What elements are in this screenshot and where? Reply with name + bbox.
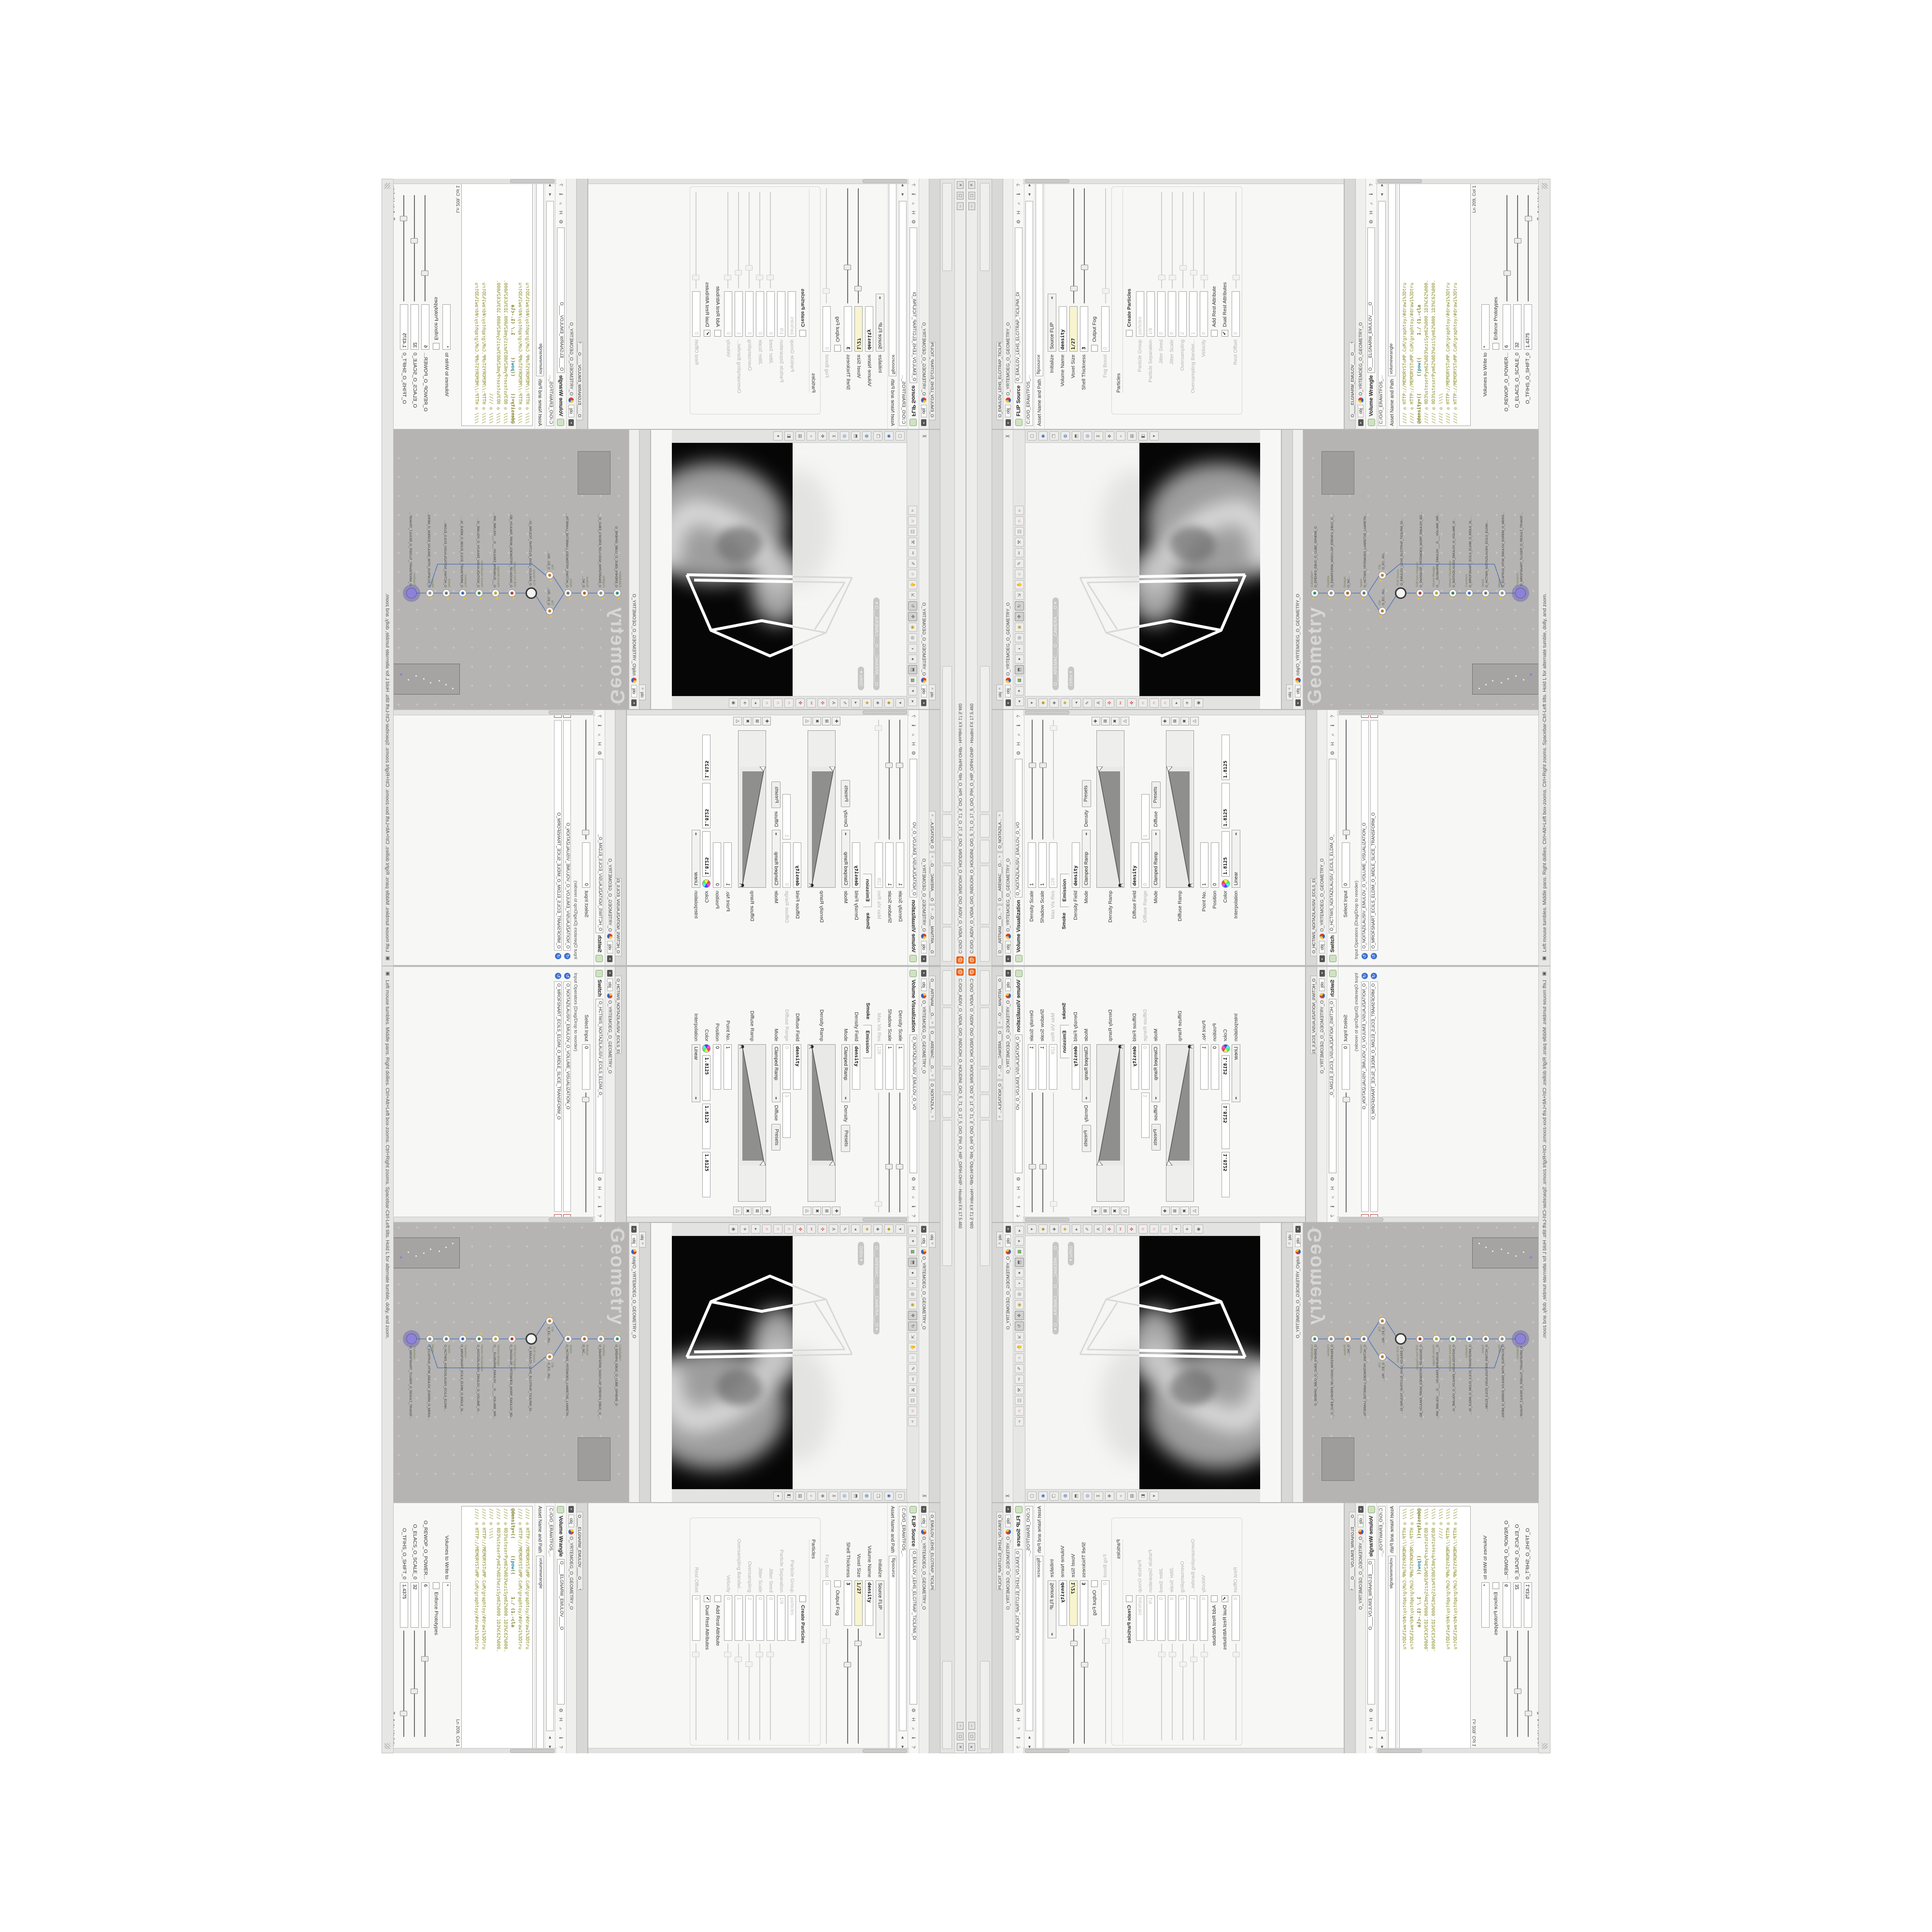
value-field-oversampling-bandwi-[interactable]: 1 xyxy=(735,291,743,337)
move-tool-icon[interactable]: ✥ xyxy=(909,612,918,621)
snapshot-icon[interactable]: ▤ xyxy=(796,1492,805,1501)
network-canvas[interactable]: + + + + + + + + + + + + + + + + + + + + … xyxy=(1303,1223,1539,1502)
value-field-oversampling[interactable]: 2 xyxy=(746,291,754,337)
magnifier-icon[interactable]: ⌕ xyxy=(911,1194,916,1201)
value-field-rest-offset[interactable]: 0 xyxy=(1232,1595,1240,1641)
ramp-button[interactable]: ⊞ xyxy=(822,1207,831,1215)
folder-tab-smoke[interactable]: Smoke xyxy=(863,908,872,934)
network-pane-tab[interactable]: obj✕ xyxy=(1286,1232,1293,1248)
network-node-vdb-from-polygons[interactable] xyxy=(508,1335,516,1343)
pane-scrollbar[interactable] xyxy=(588,179,909,184)
houdini-help-icon[interactable]: H xyxy=(911,1716,916,1723)
slider-track[interactable] xyxy=(1168,1644,1176,1743)
node-name-field[interactable]: O_NOITAZILAUSIV_EMULOV_O_VO xyxy=(1015,1035,1023,1173)
folder-tab-smoke[interactable]: Smoke xyxy=(863,998,872,1024)
fly-icon[interactable]: ✈ xyxy=(1183,698,1192,708)
cut-icon[interactable]: ✂ xyxy=(909,1375,918,1384)
network-node-clip[interactable] xyxy=(1378,1317,1386,1325)
ramp-editor[interactable] xyxy=(1166,730,1194,888)
move-tool-icon[interactable]: ✥ xyxy=(1015,1311,1024,1320)
snap-grid-icon[interactable]: ◫ xyxy=(1015,527,1024,536)
context-tab[interactable]: obj xyxy=(921,979,927,991)
info-icon[interactable]: ℹ xyxy=(1369,1734,1374,1741)
network-node-boolean[interactable] xyxy=(1344,1335,1351,1343)
shading-icon[interactable]: ◆ xyxy=(1038,1224,1048,1234)
value-field-voxel-size[interactable]: 1/27 xyxy=(1069,306,1078,352)
magnet-2-icon[interactable]: ∩ xyxy=(1150,698,1159,708)
dropdown-interpolation[interactable]: Linear◂▸ xyxy=(692,1044,700,1102)
geometry-select-icon[interactable]: ▦ xyxy=(909,1247,918,1256)
presets-button[interactable]: Presets xyxy=(1151,781,1161,809)
network-node-flip-source[interactable] xyxy=(526,1333,537,1345)
network-canvas[interactable]: + + + + + + + + + + + + + + + + + + + + … xyxy=(393,430,629,709)
value-field-velocity[interactable]: 0 xyxy=(724,291,733,337)
annotate-icon[interactable]: ✎ xyxy=(1083,698,1092,708)
node-name-field[interactable]: O_HCTIWS_NOITAZILAUSIV_ECILS_ELDIM_O_ xyxy=(596,999,603,1173)
scene-context-path[interactable]: O_YRTEMOEG_O_GEOMETRY_O xyxy=(922,1256,927,1330)
node-name-field[interactable]: O_EMULOV_LEHS_ELCITRAP_TICILPMI_DI xyxy=(1015,227,1023,383)
ramp-button[interactable]: ✖ xyxy=(812,717,821,725)
resize-grip[interactable] xyxy=(385,1743,391,1749)
shelf-tools[interactable] xyxy=(942,666,952,812)
help-icon[interactable]: ? xyxy=(911,713,916,720)
houdini-help-icon[interactable]: H xyxy=(1369,1716,1374,1723)
network-minimap[interactable] xyxy=(1472,664,1539,695)
checkbox-create-particles[interactable] xyxy=(799,1595,806,1602)
expand-icon[interactable]: ▸ xyxy=(1172,698,1181,708)
rotate-tool-icon[interactable]: ↻ xyxy=(1015,1321,1024,1331)
back-icon[interactable]: ◂ xyxy=(909,1226,918,1235)
value-field-shell-thickness[interactable]: 3 xyxy=(1080,1580,1088,1626)
value-field-2[interactable]: 1 xyxy=(1141,1093,1150,1138)
shelf-tab[interactable] xyxy=(980,927,990,962)
wireframe-icon[interactable]: ◈ xyxy=(1050,1224,1059,1234)
network-node-switch[interactable] xyxy=(1360,589,1368,597)
color-component-field[interactable]: 1.8125 xyxy=(703,831,711,877)
sphere-pair-icon[interactable]: ◍ xyxy=(1061,431,1070,440)
slider-track[interactable] xyxy=(824,1629,831,1747)
value-field-density-scale[interactable]: 1 xyxy=(896,842,905,888)
network-pane-tab[interactable]: obj✕ xyxy=(1286,684,1293,700)
input-operator-name[interactable]: O_MROFSNART_ECILS_ELDIM_O_MIDLE_SLICE_TR… xyxy=(1370,981,1378,1212)
collapse-icon[interactable]: ▾ xyxy=(1027,698,1037,708)
move-tool-icon[interactable]: ✥ xyxy=(909,1311,918,1320)
magnet-1-icon[interactable]: ∩ xyxy=(784,1224,794,1234)
context-path[interactable]: O_YRTEMOEG_O_GEOMETRY_O xyxy=(608,1000,613,1074)
network-node-volume-wrangle[interactable] xyxy=(492,1335,499,1343)
network-node-polywire[interactable] xyxy=(1327,589,1335,597)
presets-button[interactable]: Presets xyxy=(841,780,851,807)
color-component-field[interactable]: 1.8125 xyxy=(703,735,711,780)
value-field-max-vis-res[interactable]: 128 xyxy=(875,1044,883,1090)
magnifier-icon[interactable]: ⌕ xyxy=(1016,1725,1022,1732)
pane-tab[interactable]: O_EMULOV_LEHS_ELCITRAP_TICILPMI_PARTICLE… xyxy=(929,1512,936,1590)
network-node-transform[interactable] xyxy=(406,588,417,598)
value-field-diffuse-range[interactable]: 0 xyxy=(783,842,791,888)
ramp-button[interactable]: ✖ xyxy=(1180,1207,1189,1215)
network-node-clip[interactable] xyxy=(546,1317,554,1325)
slider-track[interactable] xyxy=(1190,1644,1197,1743)
secure-selection-icon[interactable]: ⬒ xyxy=(1015,665,1024,674)
gear-icon[interactable]: ⚙ xyxy=(1016,1176,1022,1182)
view-menu-icon[interactable]: ▾ xyxy=(1150,431,1159,440)
playbar-strip[interactable] xyxy=(942,1661,952,1749)
magnifier-icon[interactable]: ⌕ xyxy=(1369,1725,1374,1732)
checkbox-enforce-prototypes[interactable] xyxy=(433,1582,440,1589)
value-field-jitter-seed[interactable]: 0 xyxy=(1157,1595,1165,1641)
scale-tool-icon[interactable]: ⇲ xyxy=(909,591,918,600)
ramp-editor[interactable] xyxy=(738,730,766,888)
slider-track[interactable] xyxy=(1232,189,1239,288)
value-field-fog-boost[interactable]: 0 xyxy=(1101,1580,1109,1626)
value-field-position[interactable]: 0 xyxy=(1211,842,1219,888)
value-field-velocity[interactable]: 0 xyxy=(1200,1595,1208,1641)
look-icon[interactable]: ◉ xyxy=(1194,1224,1203,1234)
ramp-button[interactable]: ✖ xyxy=(743,1207,752,1215)
checkbox-output-fog[interactable] xyxy=(1091,345,1098,352)
slider-track[interactable] xyxy=(824,185,831,303)
gear-icon[interactable]: ⚙ xyxy=(911,750,916,756)
slider-track[interactable] xyxy=(583,1093,590,1215)
asset-name-field[interactable]: volumewrangle xyxy=(536,1556,544,1750)
network-minimap[interactable] xyxy=(393,1237,460,1268)
expand-icon[interactable]: ▸ xyxy=(751,698,760,708)
network-context-tab[interactable]: obj xyxy=(1295,685,1301,697)
value-field-position[interactable]: 0 xyxy=(713,1044,722,1090)
close-button[interactable]: ✕ xyxy=(968,181,975,189)
view-type-pill[interactable]: Ortho ▾ xyxy=(1068,667,1074,690)
tools-icon[interactable]: ⚒ xyxy=(1015,538,1024,547)
dropdown-mode[interactable]: Clamped Ramp◂▸ xyxy=(1151,1044,1160,1102)
slider-track[interactable] xyxy=(736,1644,743,1743)
smooth-shade-icon[interactable]: ❖ xyxy=(1061,698,1070,708)
value-field-volume-name[interactable]: density xyxy=(1059,306,1067,352)
scene-pane-tab[interactable]: obj✕ xyxy=(996,684,1003,700)
ramp-button[interactable]: ✚ xyxy=(1092,1207,1100,1215)
value-field-volume-name[interactable]: density xyxy=(1059,1580,1067,1626)
info-icon[interactable]: ℹ xyxy=(558,1734,564,1741)
pane-tab[interactable]: O_HCTIWS_NOITAZILAUSIV_ECILS_ELDIM_O_✕ xyxy=(1310,878,1317,956)
pan-icon[interactable]: ✥ xyxy=(1105,431,1114,440)
context-path[interactable]: O_YRTEMOEG_O_GEOMETRY_O xyxy=(1358,1536,1364,1610)
value-field-jitter-scale[interactable]: 0 xyxy=(1168,291,1176,337)
network-node-flip-source[interactable] xyxy=(1395,587,1406,599)
edge-select-icon[interactable]: ◎ xyxy=(909,633,918,642)
ramp-button[interactable]: ✚ xyxy=(832,1207,840,1215)
snapshot-icon[interactable]: ▤ xyxy=(796,431,805,440)
ramp-button[interactable]: △ xyxy=(1190,717,1199,725)
reorder-icon[interactable]: ↺ xyxy=(564,953,570,959)
box-icon[interactable]: ⬒ xyxy=(851,1492,860,1501)
clip-tool-icon[interactable]: ✂ xyxy=(1116,1224,1125,1234)
more-icon[interactable]: ▹ xyxy=(1015,1417,1024,1426)
back-icon[interactable]: ◂ xyxy=(1015,1226,1024,1235)
prev-arrow-icon[interactable]: ◂ xyxy=(1379,191,1385,198)
edit-icon[interactable]: ✎ xyxy=(909,1364,918,1373)
input-operator-name[interactable]: O_MROFSNART_ECILS_ELDIM_O_MIDLE_SLICE_TR… xyxy=(1370,720,1378,951)
target-icon[interactable]: ◎ xyxy=(840,1492,849,1501)
value-field-density-field[interactable]: density xyxy=(1072,842,1080,888)
color-component-field[interactable]: 1.8125 xyxy=(1222,1152,1230,1197)
vex-code-editor[interactable]: //// ◎ HTTP://MEMORYST◎MP.C◎M/graphtoy/#… xyxy=(1399,1506,1471,1748)
gear-icon[interactable]: ⚙ xyxy=(597,1176,602,1182)
shading-icon[interactable]: ◆ xyxy=(884,1224,894,1234)
prev-arrow-icon[interactable]: ◂ xyxy=(548,191,553,198)
checkbox-dual-rest-attributes[interactable]: ✔ xyxy=(1222,1595,1228,1602)
network-minimap[interactable] xyxy=(393,664,460,695)
magnifier-icon[interactable]: ⌕ xyxy=(558,1725,564,1732)
asset-name-field[interactable]: flipsource xyxy=(1036,182,1043,376)
magnifier-icon[interactable]: ⌕ xyxy=(911,1725,916,1732)
shelf-tool[interactable] xyxy=(980,814,990,838)
pane-tab[interactable]: O___AREMAC___O...✕ xyxy=(996,1028,1003,1080)
viewport-render[interactable]: O___AREMAC___O___CAMERA___O ▾ Ortho ▾ xyxy=(1025,443,1260,696)
info-icon[interactable]: ℹ xyxy=(1016,1734,1022,1741)
slider-track[interactable] xyxy=(1179,1644,1186,1743)
shelf-tab[interactable] xyxy=(980,970,990,1005)
gear-icon[interactable]: ⚙ xyxy=(911,1707,916,1714)
presets-button[interactable]: Presets xyxy=(1082,1125,1091,1152)
value-field-o-elacs-o-scale-0[interactable]: 32 xyxy=(1513,1582,1521,1628)
snap-point-icon[interactable]: ✜ xyxy=(796,1224,805,1234)
text-icon[interactable]: A xyxy=(829,698,838,708)
slider-track[interactable] xyxy=(1514,192,1521,301)
dropdown-initialize[interactable]: Source FLIP◂▸ xyxy=(1048,294,1056,352)
camera-menu-pill[interactable]: O___AREMAC___O___CAMERA___O ▾ xyxy=(1052,597,1059,690)
annotate-icon[interactable]: ✎ xyxy=(1083,1224,1092,1234)
dropdown-initialize[interactable]: Source FLIP◂▸ xyxy=(876,294,884,352)
context-path[interactable]: O_YRTEMOEG_O_GEOMETRY_O xyxy=(1320,1000,1325,1074)
slider-track[interactable] xyxy=(876,1093,883,1215)
context-path[interactable]: O_YRTEMOEG_O_GEOMETRY_O xyxy=(922,322,927,396)
asset-path-field[interactable]: C:/O/O_ERAWTFOS_... xyxy=(1378,201,1386,426)
ramp-button[interactable]: ✖ xyxy=(1180,717,1189,725)
help-icon[interactable]: ? xyxy=(1369,182,1374,188)
network-node-transform[interactable] xyxy=(459,1335,467,1343)
ramp-button[interactable]: ⊞ xyxy=(1171,717,1179,725)
box-icon[interactable]: ⬒ xyxy=(1072,1492,1081,1501)
info-icon[interactable]: ℹ xyxy=(1369,191,1374,198)
shelf-tool[interactable] xyxy=(942,814,952,838)
context-tab[interactable]: obj xyxy=(1005,979,1011,991)
look-icon[interactable]: ◉ xyxy=(729,1224,738,1234)
shelf-tool[interactable] xyxy=(942,840,952,863)
zoom-icon[interactable]: ⌕ xyxy=(807,431,816,440)
magnet-3-icon[interactable]: ∩ xyxy=(762,698,771,708)
snap-point-icon[interactable]: ✜ xyxy=(1127,1224,1136,1234)
network-node-switch[interactable] xyxy=(442,589,450,597)
value-field-particle-group[interactable]: particles xyxy=(788,1595,796,1641)
text-icon[interactable]: A xyxy=(1094,698,1103,708)
value-field-shell-thickness[interactable]: 3 xyxy=(1080,306,1088,352)
pane-tab[interactable]: O___ARTNAM___O...✕ xyxy=(996,905,1003,956)
value-field-diffuse-field[interactable]: density xyxy=(794,842,802,888)
value-field-oversampling-bandwi-[interactable]: 1 xyxy=(1189,1595,1197,1641)
magnet-1-icon[interactable]: ∩ xyxy=(784,698,794,708)
shelf-tool[interactable] xyxy=(980,1094,990,1118)
more-icon[interactable]: ▹ xyxy=(909,506,918,515)
node-name-field[interactable]: O_HCTIWS_NOITAZILAUSIV_ECILS_ELDIM_O_ xyxy=(596,759,603,933)
ramp-button[interactable]: ✖ xyxy=(743,717,752,725)
collapse-icon[interactable]: ▾ xyxy=(895,698,905,708)
color-component-field[interactable]: 1.8125 xyxy=(703,1104,711,1149)
value-field-density-scale[interactable]: 1 xyxy=(896,1044,905,1090)
checkbox-output-fog[interactable] xyxy=(834,345,841,352)
reorder-icon[interactable]: ↺ xyxy=(564,973,570,979)
houdini-help-icon[interactable]: H xyxy=(1016,1716,1022,1723)
magnet-snap-icon[interactable]: ∩ xyxy=(1015,1406,1024,1416)
info-icon[interactable]: ℹ xyxy=(1330,1203,1335,1210)
help-icon[interactable]: ? xyxy=(558,1744,564,1750)
dropdown-initialize[interactable]: Source FLIP◂▸ xyxy=(876,1580,884,1638)
magnifier-icon[interactable]: ⌕ xyxy=(597,1194,602,1201)
context-tab[interactable]: obj xyxy=(1005,941,1011,953)
presets-button[interactable]: Presets xyxy=(772,1124,781,1151)
primitive-select-icon[interactable]: ◐ xyxy=(1015,644,1024,653)
minimize-button[interactable]: – xyxy=(968,1722,975,1730)
color-component-field[interactable]: 1.8125 xyxy=(1222,735,1230,780)
ramp-button[interactable]: ✚ xyxy=(762,1207,771,1215)
secure-selection-icon[interactable]: ⬒ xyxy=(909,665,918,674)
context-tab[interactable]: obj xyxy=(1005,405,1011,417)
point-select-icon[interactable]: ● xyxy=(1015,654,1024,664)
value-field-jitter-scale[interactable]: 0 xyxy=(1168,1595,1176,1641)
slider-track[interactable] xyxy=(1200,189,1207,288)
clip-tool-icon[interactable]: ✂ xyxy=(807,1224,816,1234)
network-pane-tab[interactable]: obj✕ xyxy=(639,1232,646,1248)
houdini-help-icon[interactable]: H xyxy=(558,1716,564,1723)
collapse-icon[interactable]: ▾ xyxy=(895,1224,905,1234)
view-layout-icon[interactable]: ▢ xyxy=(1027,1492,1037,1501)
ramp-button[interactable]: △ xyxy=(1190,1207,1199,1215)
axis-gizmo-icon[interactable]: ✣ xyxy=(1105,698,1114,708)
value-field-o-rewop-o-power-[interactable]: 6 xyxy=(1503,1582,1511,1628)
wireframe-icon[interactable]: ◈ xyxy=(873,1224,882,1234)
geometry-select-icon[interactable]: ▦ xyxy=(1015,676,1024,685)
snap-grid-icon[interactable]: ◫ xyxy=(1015,1396,1024,1405)
value-field-jitter-scale[interactable]: 0 xyxy=(756,1595,765,1641)
slider-track[interactable] xyxy=(1028,1093,1036,1215)
pin-icon[interactable]: ⊼ xyxy=(922,1492,927,1499)
edit-icon[interactable]: ✎ xyxy=(1015,559,1024,568)
arrow-icon[interactable]: ◂ xyxy=(1072,1224,1081,1234)
view-menu-icon[interactable]: ▾ xyxy=(773,1492,782,1501)
network-node-boolean[interactable] xyxy=(581,1335,588,1343)
pane-scrollbar[interactable] xyxy=(393,179,556,184)
info-icon[interactable]: ℹ xyxy=(1330,722,1335,729)
context-tab[interactable]: obj xyxy=(607,979,613,991)
reorder-icon[interactable]: ↺ xyxy=(1371,973,1377,979)
network-node-clip[interactable] xyxy=(546,1353,554,1361)
value-field-position[interactable]: 0 xyxy=(1211,1044,1219,1090)
slider-track[interactable] xyxy=(725,189,732,288)
pin-view-icon[interactable]: ⊼ xyxy=(1094,1492,1103,1501)
move-tool-icon[interactable]: ✥ xyxy=(1015,612,1024,621)
select-icon[interactable]: ✦ xyxy=(1015,686,1024,696)
gear-icon[interactable]: ⚙ xyxy=(597,750,602,756)
checkbox-add-rest-attribute[interactable] xyxy=(1211,1595,1218,1602)
magnet-snap-icon[interactable]: ∩ xyxy=(909,516,918,526)
geometry-select-icon[interactable]: ▦ xyxy=(909,676,918,685)
pane-scrollbar[interactable] xyxy=(1376,179,1539,184)
context-tab[interactable]: obj xyxy=(921,1515,927,1527)
slider-track[interactable] xyxy=(1342,1093,1350,1215)
collapse-icon[interactable]: ▾ xyxy=(1027,1224,1037,1234)
ramp-button[interactable]: △ xyxy=(733,717,742,725)
playbar-strip[interactable] xyxy=(980,183,990,271)
reorder-icon[interactable]: ↺ xyxy=(1362,973,1368,979)
slider-track[interactable] xyxy=(767,1644,775,1743)
value-field-2[interactable]: 1 xyxy=(783,794,791,839)
maximize-button[interactable]: ▢ xyxy=(968,1733,975,1740)
network-breadcrumb[interactable]: /obj/O_YRTEMOEG_O_GEOMETRY_O xyxy=(632,1256,637,1338)
scale-tool-icon[interactable]: ⇲ xyxy=(1015,1332,1024,1341)
arrow-icon[interactable]: ◂ xyxy=(851,698,860,708)
context-tab[interactable]: obj xyxy=(607,941,613,953)
help-icon[interactable]: ? xyxy=(597,1212,602,1219)
magnet-3-icon[interactable]: ∩ xyxy=(1161,698,1170,708)
node-name-field[interactable]: O____ELGNARW_EMULOV____O xyxy=(1367,227,1375,373)
shelf-tool[interactable] xyxy=(942,1094,952,1118)
scene-context-path[interactable]: O_YRTEMOEG_O_GEOMETRY_O xyxy=(922,602,927,676)
slider-track[interactable] xyxy=(757,189,764,288)
slider-track[interactable] xyxy=(1039,717,1046,839)
asset-name-field[interactable]: flipsource xyxy=(889,182,896,376)
value-field-voxel-size[interactable]: 1/27 xyxy=(855,1580,863,1626)
sphere-pair-icon[interactable]: ◍ xyxy=(862,1492,871,1501)
split-view-icon[interactable]: ◧ xyxy=(1138,1492,1148,1501)
minimize-button[interactable]: – xyxy=(957,1722,964,1730)
magnifier-icon[interactable]: ⌕ xyxy=(1330,1194,1335,1201)
slider-track[interactable] xyxy=(1050,717,1057,839)
value-field-o-tfihs-o-shift-0[interactable]: 1.4375 xyxy=(1524,1582,1532,1628)
context-path[interactable]: O_YRTEMOEG_O_GEOMETRY_O xyxy=(922,1000,927,1074)
scene-pane-tab[interactable]: obj✕ xyxy=(929,684,936,700)
value-field-select-input[interactable]: 0 xyxy=(582,842,591,888)
houdini-help-icon[interactable]: H xyxy=(1330,1185,1335,1192)
view-menu-icon[interactable]: ▾ xyxy=(773,431,782,440)
help-icon[interactable]: ? xyxy=(1369,1744,1374,1750)
slider-track[interactable] xyxy=(1039,1093,1046,1215)
value-field-oversampling-bandwi-[interactable]: 1 xyxy=(1189,291,1197,337)
slider-track[interactable] xyxy=(693,189,700,288)
houdini-help-icon[interactable]: H xyxy=(911,740,916,747)
context-path[interactable]: O_YRTEMOEG_O_GEOMETRY_O xyxy=(1320,858,1325,932)
slider-track[interactable] xyxy=(886,1093,894,1215)
gear-icon[interactable]: ⚙ xyxy=(1369,1707,1374,1714)
gear-icon[interactable]: ⚙ xyxy=(911,218,916,225)
back-icon[interactable]: ◂ xyxy=(909,697,918,706)
cut-icon[interactable]: ✂ xyxy=(909,548,918,557)
asset-name-field[interactable]: volumewrangle xyxy=(536,182,544,376)
pane-tab[interactable]: O_EMULOV_LEHS_ELCITRAP_TICILPMI_PARTICLE… xyxy=(996,1512,1003,1590)
dropdown-initialize[interactable]: Source FLIP◂▸ xyxy=(1048,1580,1056,1638)
network-breadcrumb[interactable]: /obj/O_YRTEMOEG_O_GEOMETRY_O xyxy=(632,594,637,676)
minimize-button[interactable]: – xyxy=(957,202,964,210)
pose-icon[interactable]: ○ xyxy=(1015,1353,1024,1363)
snapshot-icon[interactable]: ▤ xyxy=(1127,1492,1136,1501)
value-field-volumes-to-write-to[interactable]: * xyxy=(1481,304,1490,350)
shelf-tab[interactable] xyxy=(942,866,952,924)
network-node-volume-wrangle[interactable] xyxy=(1433,1335,1440,1343)
shading-icon[interactable]: ◆ xyxy=(884,698,894,708)
wireframe-icon[interactable]: ◈ xyxy=(1050,698,1059,708)
frame-view-icon[interactable]: ❐ xyxy=(1050,431,1059,440)
value-field-o-tfihs-o-shift-0[interactable]: 1.4375 xyxy=(400,1582,409,1628)
prev-arrow-icon[interactable]: ◂ xyxy=(548,1734,553,1741)
ramp-editor[interactable] xyxy=(738,1044,766,1202)
pane-tab[interactable]: O_HCTIWS_NOITAZILAUSIV_ECILS_ELDIM_O_✕ xyxy=(1310,976,1317,1054)
